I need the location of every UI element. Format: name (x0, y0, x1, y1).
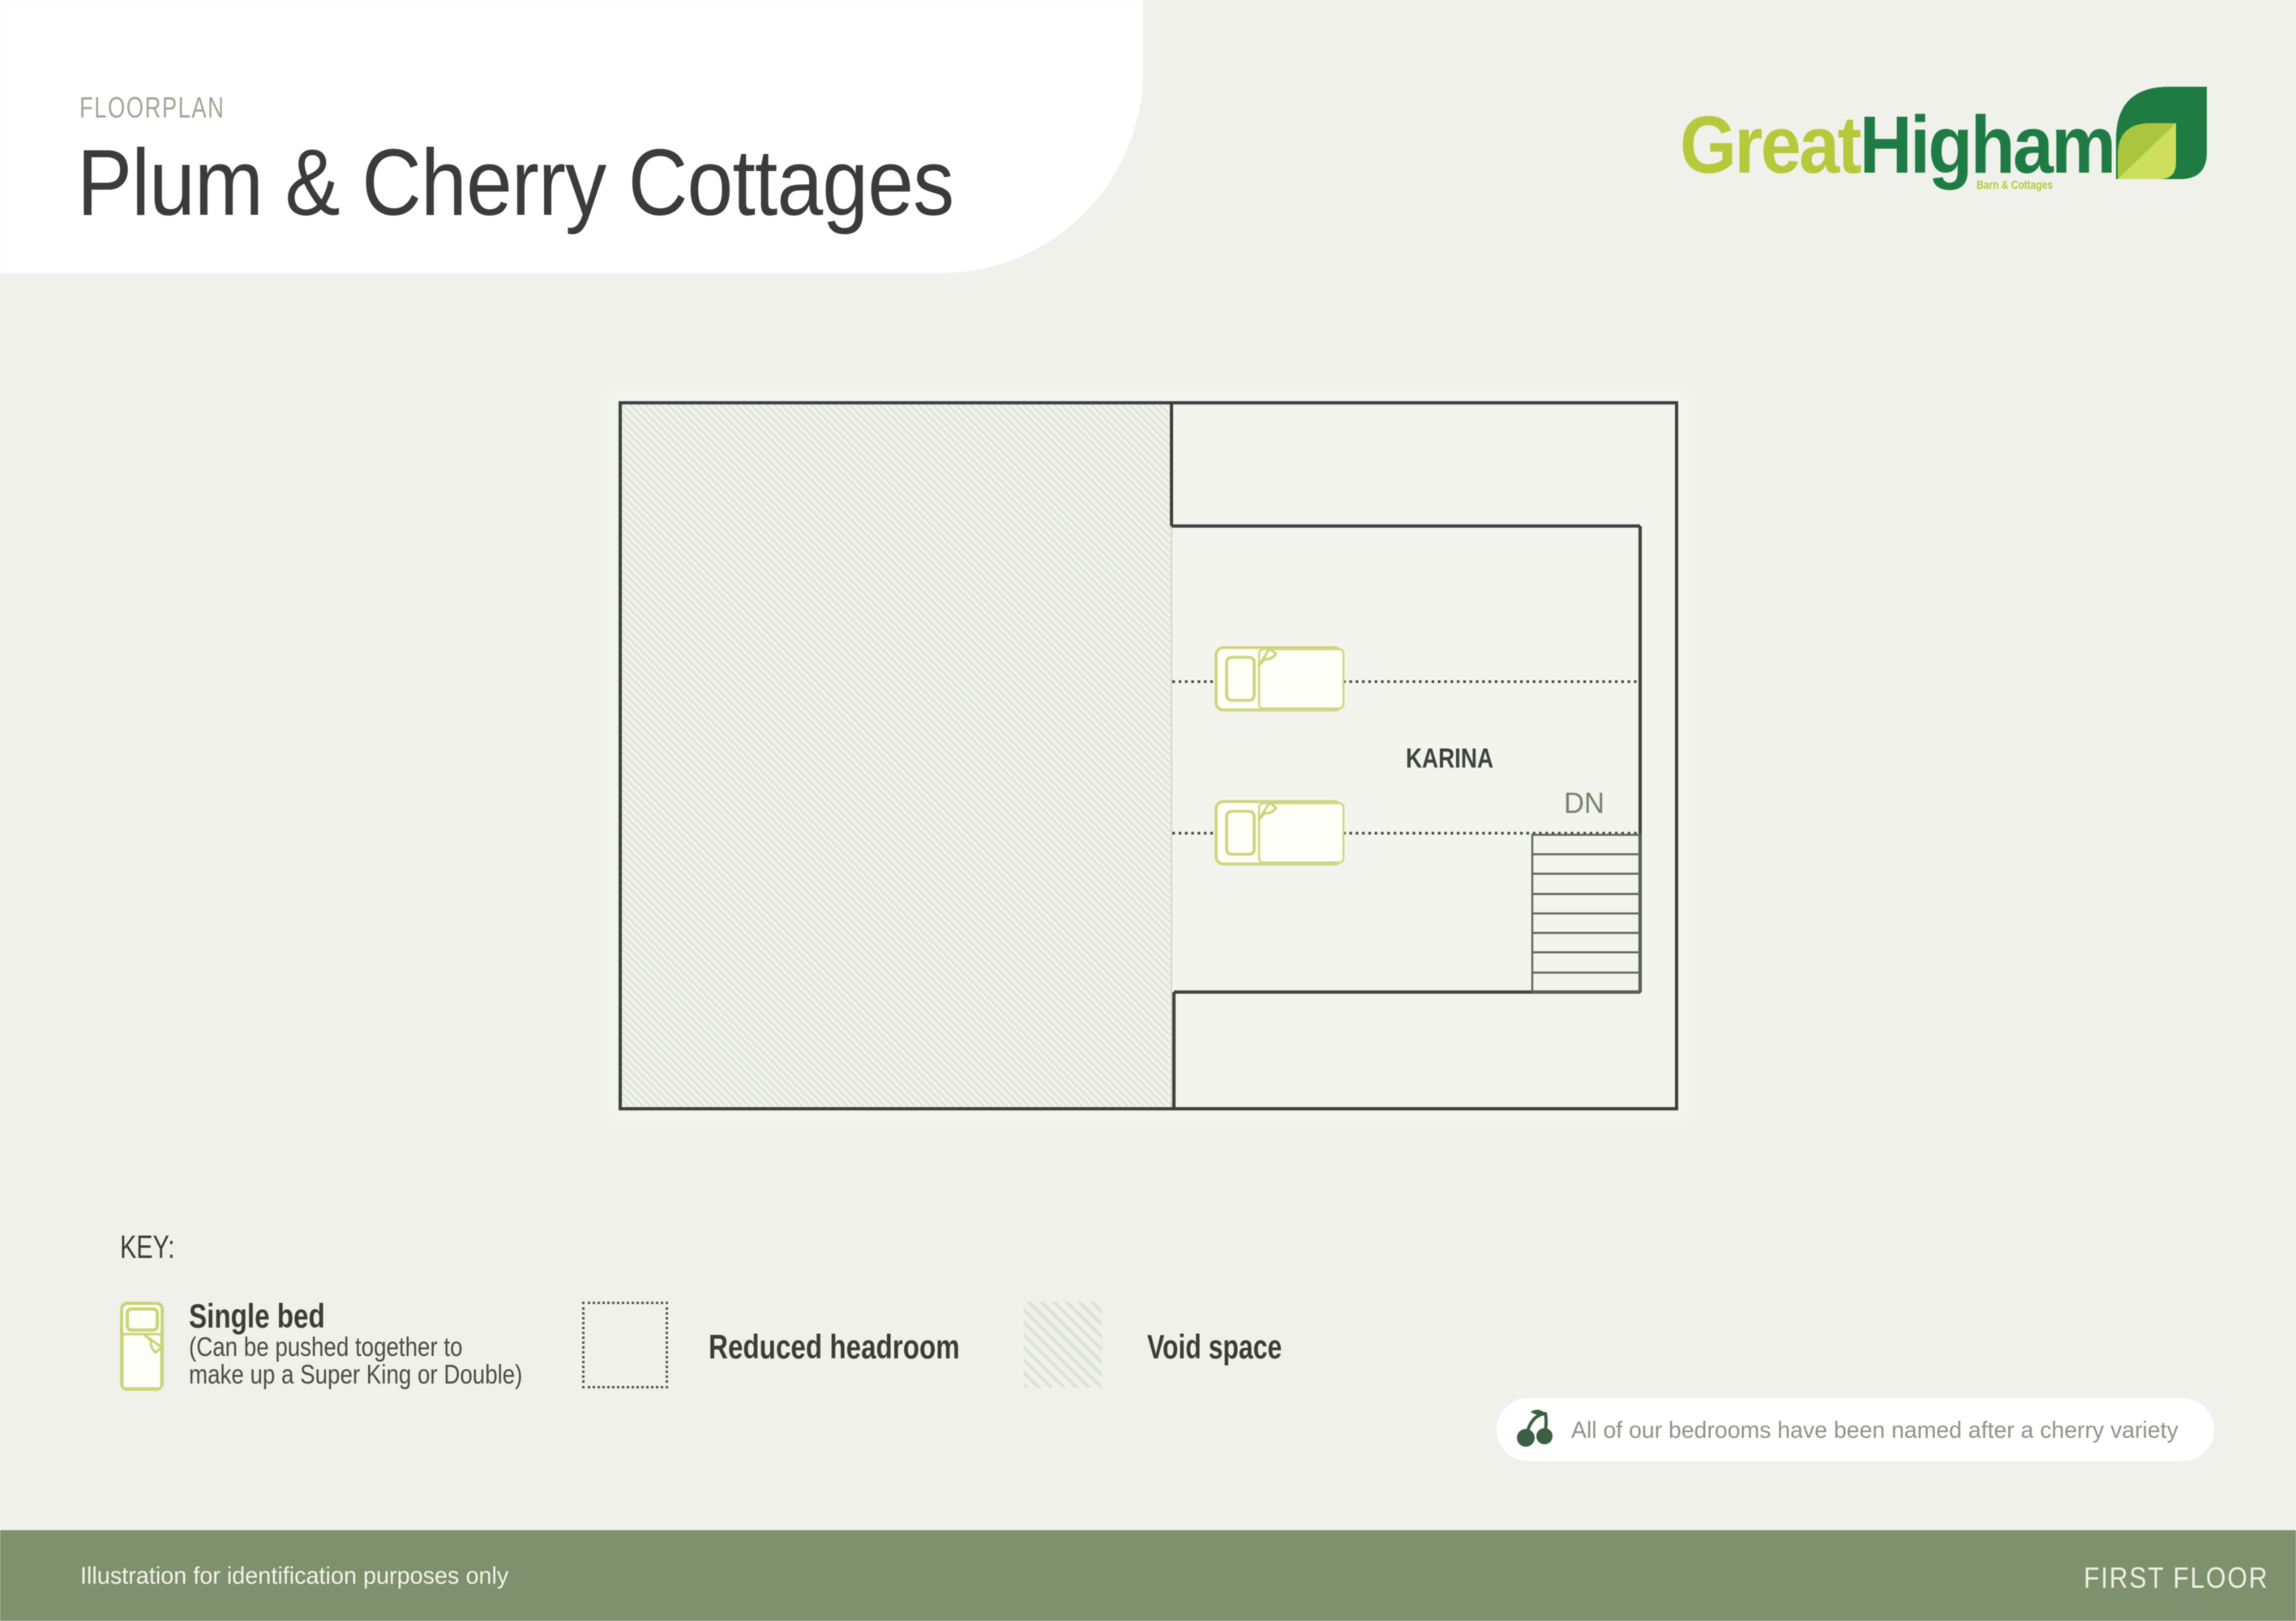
svg-text:KARINA: KARINA (1406, 743, 1493, 774)
svg-text:DN: DN (1564, 786, 1604, 819)
